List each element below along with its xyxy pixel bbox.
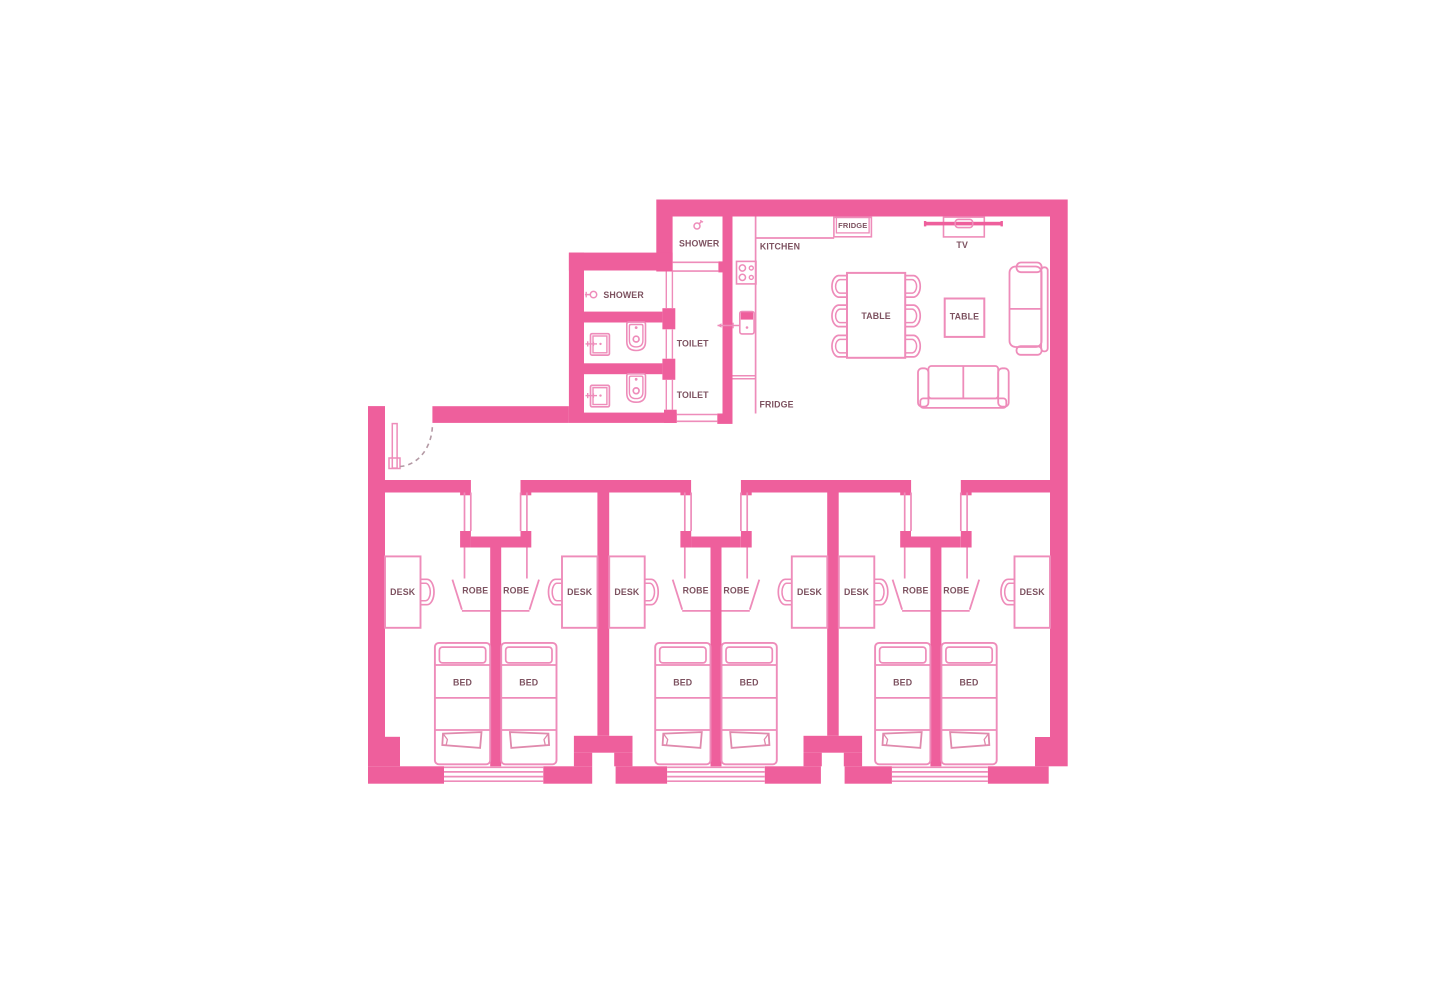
svg-text:ROBE: ROBE: [902, 586, 928, 596]
svg-text:DESK: DESK: [614, 587, 640, 597]
svg-text:SHOWER: SHOWER: [679, 238, 720, 248]
svg-text:BED: BED: [453, 677, 472, 687]
svg-text:TOILET: TOILET: [677, 339, 709, 349]
svg-text:ROBE: ROBE: [723, 586, 749, 596]
svg-text:DESK: DESK: [567, 587, 593, 597]
svg-text:FRIDGE: FRIDGE: [838, 221, 867, 230]
svg-text:BED: BED: [959, 677, 978, 687]
svg-text:DESK: DESK: [1020, 587, 1046, 597]
svg-text:TABLE: TABLE: [861, 311, 890, 321]
svg-text:TOILET: TOILET: [677, 390, 709, 400]
svg-text:ROBE: ROBE: [943, 586, 969, 596]
svg-text:SHOWER: SHOWER: [603, 290, 644, 300]
svg-text:DESK: DESK: [390, 587, 416, 597]
svg-text:BED: BED: [893, 677, 912, 687]
svg-text:FRIDGE: FRIDGE: [760, 399, 794, 409]
svg-text:TV: TV: [956, 240, 968, 250]
svg-text:KITCHEN: KITCHEN: [760, 241, 800, 251]
svg-text:ROBE: ROBE: [683, 586, 709, 596]
svg-text:BED: BED: [519, 677, 538, 687]
svg-text:ROBE: ROBE: [462, 586, 488, 596]
svg-text:BED: BED: [740, 677, 759, 687]
svg-text:ROBE: ROBE: [503, 586, 529, 596]
svg-text:TABLE: TABLE: [950, 312, 979, 322]
svg-text:BED: BED: [673, 677, 692, 687]
svg-text:DESK: DESK: [844, 587, 870, 597]
svg-text:DESK: DESK: [797, 587, 823, 597]
